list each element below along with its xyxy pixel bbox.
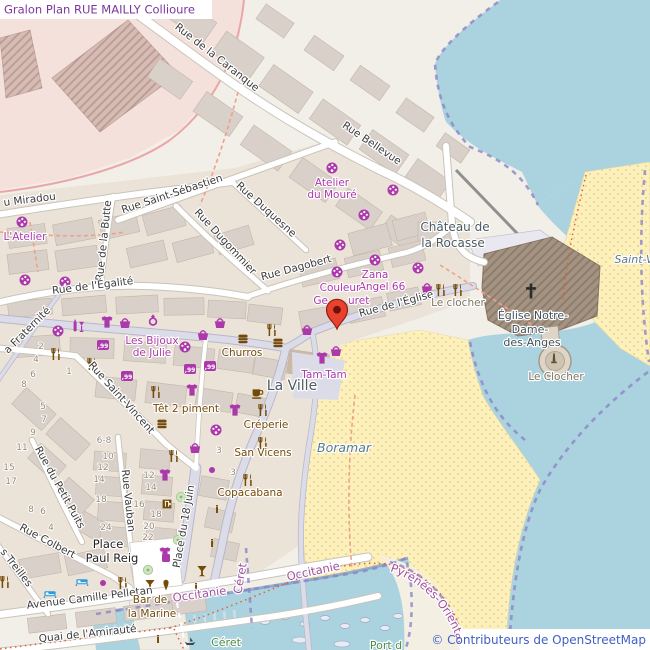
place-label-la-ville: La Ville [267,378,317,394]
door-icon [163,500,172,509]
poi-label-le-clocher-restaurant: Le clocher [431,297,485,309]
palette-icon [211,425,222,436]
house-number: 5 [40,402,46,412]
green-label-ceret: Céret [211,636,241,649]
poi-label-couleur-2a: Ge [313,295,328,307]
attribution-link[interactable]: © Contributeurs de OpenStreetMap [431,633,646,647]
palette-icon [17,217,28,228]
poi-label-san-vicens: San Vicens [234,447,291,459]
poi-label-copacabana: Copacabana [217,487,282,499]
dot-icon [209,467,215,473]
page-title: Gralon Plan RUE MAILLY Collioure [4,3,195,17]
poi-label-bar-marine-2: la Marine [128,608,177,620]
house-number: 20 [143,522,155,532]
info-icon [215,503,219,516]
info-icon [156,633,160,646]
house-number: 18 [150,510,162,520]
poi-label-bijoux-1: Les Bijoux [125,335,178,347]
house-number: 17 [5,477,16,487]
poi-label-couleur-2b: uret [348,295,369,307]
dot-icon [100,580,106,586]
burger-icon [273,339,282,348]
palette-icon [359,210,370,221]
poi-label-zana-1: Zana [362,269,389,281]
house-number: 12 [143,471,154,481]
poi-label-atelier-moure-2: du Mouré [307,189,356,201]
house-number: 3 [216,446,222,456]
place-label-paul-reig-1: Place [93,537,124,551]
map-viewport: ,99 i [0,0,650,650]
palette-icon [327,163,338,174]
palette-icon [332,267,343,278]
house-number: 8 [28,505,34,515]
house-number: 1 [66,367,72,377]
place-label-chateau-1: Château de [420,220,489,234]
poi-label-bijoux-2: de Julie [133,347,172,359]
poi-label-atelier-moure-1: Atelier [315,177,350,189]
burger-icon [157,420,166,429]
palette-icon [370,255,381,266]
tree-icon [143,565,152,574]
house-number: 6-8 [97,436,112,446]
house-number: 2 [38,342,44,352]
house-number: 15 [3,463,14,473]
map-canvas: ,99 i [0,0,650,650]
house-number: 12 [97,463,108,473]
poi-label-tet-2-piment: Têt 2 piment [152,403,219,415]
water-label-boramar: Boramar [317,440,372,455]
poi-label-bar-marine-1: Bar de [133,594,167,606]
place-label-paul-reig-2: Paul Reig [86,551,139,565]
house-number: 24 [100,523,112,533]
title-bar: Gralon Plan RUE MAILLY Collioure [0,0,212,19]
house-number: 3 [230,468,236,478]
palette-icon [53,326,64,337]
palette-icon [388,185,399,196]
house-number: 10 [102,452,114,462]
tag99-icon [97,340,109,350]
house-number: 22 [142,533,153,543]
poi-label-creperie: Créperie [244,419,289,431]
sq-icon [162,554,170,562]
poi-label-eglise-2: Dame- [512,323,549,336]
poi-label-eglise-1: Église Notre- [498,309,568,322]
house-number: 14 [145,483,157,493]
house-number: 11 [16,443,27,453]
green-label-port: Port d [370,639,402,650]
house-number: 8 [21,380,27,390]
house-number: 4 [48,523,54,533]
poi-label-zana-2: Angel 66 [359,281,406,293]
poi-label-churros: Churros [222,347,263,359]
poi-label-latelier: L'Atelier [4,231,48,243]
place-label-chateau-2: la Rocasse [421,236,484,250]
house-number: 18 [95,495,107,505]
tag99-icon [121,371,133,381]
house-number: 9 [30,428,36,438]
house-number: 6 [40,507,46,517]
burger-icon [238,335,247,344]
house-number: 7 [41,415,47,425]
attribution-bar[interactable]: © Contributeurs de OpenStreetMap [431,629,650,650]
poi-label-eglise-3: des-Anges [503,336,560,349]
house-number: 6 [30,370,36,380]
palette-icon [180,342,191,353]
house-number: 14 [93,475,105,485]
water-label-saint-vincent: Saint-V [614,253,650,266]
poi-label-couleur-1: Couleur [320,282,361,294]
tag99-icon [204,361,216,371]
poi-label-le-clocher-monument: Le Clocher [528,371,584,383]
house-number: 4 [33,355,39,365]
palette-icon [335,240,346,251]
palette-icon [20,275,31,286]
tag99-icon [184,364,196,374]
info-icon [210,537,214,550]
palette-icon [413,263,424,274]
